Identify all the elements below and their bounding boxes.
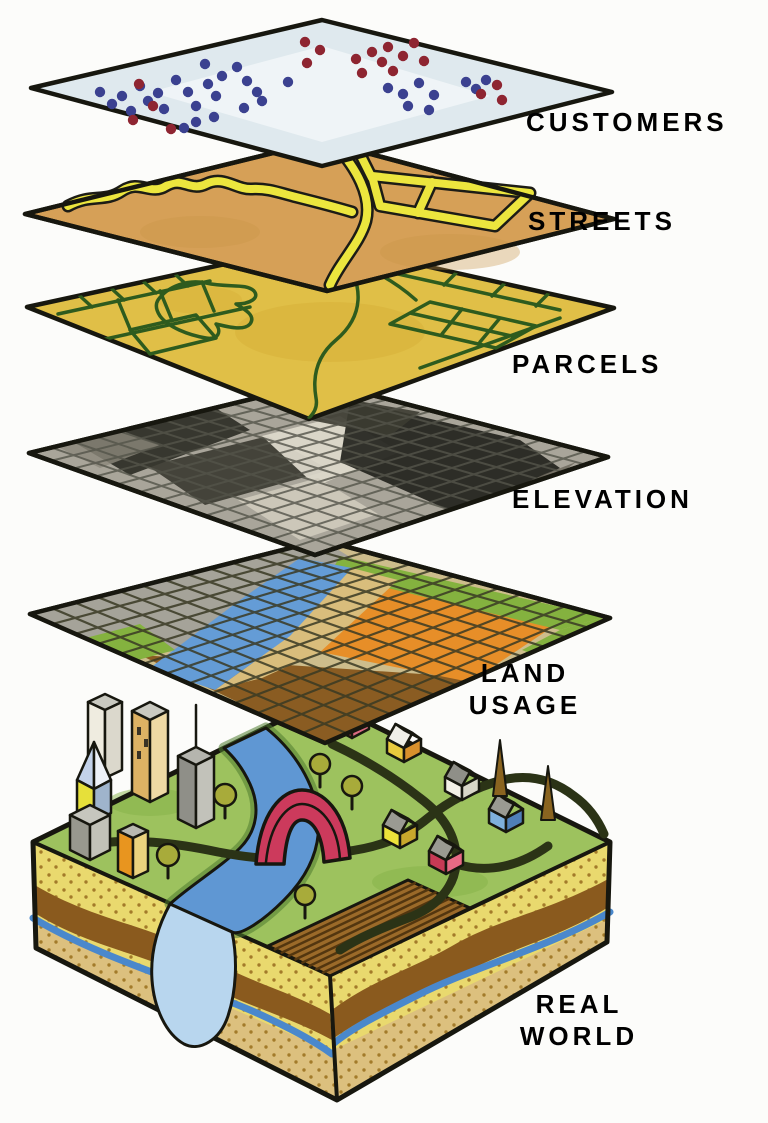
customer-dot (398, 89, 408, 99)
customer-dot (424, 105, 434, 115)
customer-dot (357, 68, 367, 78)
label-customers-text: CUSTOMERS (526, 107, 728, 137)
label-parcels: PARCELS (512, 349, 662, 380)
customer-dot (191, 117, 201, 127)
customer-dot (315, 45, 325, 55)
window (137, 751, 141, 759)
customer-dot (497, 95, 507, 105)
label-real-world: REAL WORLD (490, 988, 668, 1052)
customer-dot (481, 75, 491, 85)
label-streets: STREETS (528, 206, 676, 237)
customer-dot (367, 47, 377, 57)
customer-dot (377, 57, 387, 67)
customer-dot (383, 83, 393, 93)
building-wall (196, 756, 214, 828)
customer-dot (403, 101, 413, 111)
label-customers: CUSTOMERS (526, 107, 728, 138)
building-wall (133, 831, 148, 878)
tree-icon (342, 776, 362, 796)
customer-dot (398, 51, 408, 61)
customer-dot (476, 89, 486, 99)
layers-illustration (0, 0, 768, 1123)
customer-dot (95, 87, 105, 97)
conifer-tree-icon (541, 766, 555, 820)
label-elevation-text: ELEVATION (512, 484, 693, 514)
window (144, 739, 148, 747)
customer-dot (232, 62, 242, 72)
customer-dot (203, 79, 213, 89)
customer-dot (351, 54, 361, 64)
customer-dot (126, 106, 136, 116)
gray-block-building (70, 805, 110, 860)
label-land-usage-line1: LAND (440, 657, 610, 689)
label-land-usage: LAND USAGE (440, 657, 610, 721)
tree-icon (157, 844, 179, 866)
customer-dot (153, 88, 163, 98)
customer-dot (117, 91, 127, 101)
customer-dot (128, 115, 138, 125)
building-wall (178, 756, 196, 828)
conifer-tree-icon (493, 740, 507, 796)
window (137, 727, 141, 735)
label-land-usage-line2: USAGE (440, 689, 610, 721)
label-elevation: ELEVATION (512, 484, 693, 515)
streets-wash (380, 234, 520, 270)
customer-dot (217, 71, 227, 81)
house (387, 724, 421, 762)
building-wall (118, 831, 133, 878)
customers-layer (31, 20, 612, 166)
customer-dot (159, 104, 169, 114)
customer-dot (409, 38, 419, 48)
customer-dot (492, 80, 502, 90)
customer-dot (179, 123, 189, 133)
customer-dot (383, 42, 393, 52)
tree-icon (214, 784, 236, 806)
customer-dot (300, 37, 310, 47)
customer-dot (388, 66, 398, 76)
parcels-wash (235, 302, 425, 362)
customer-dot (211, 91, 221, 101)
customer-dot (242, 76, 252, 86)
tree-icon (295, 885, 315, 905)
orange-block-building (118, 824, 148, 878)
customer-dot (209, 112, 219, 122)
customer-dot (257, 96, 267, 106)
label-parcels-text: PARCELS (512, 349, 662, 379)
customer-dot (283, 77, 293, 87)
building-wall (105, 702, 122, 778)
customer-dot (461, 77, 471, 87)
customer-dot (166, 124, 176, 134)
label-streets-text: STREETS (528, 206, 676, 236)
customer-dot (183, 87, 193, 97)
tan-tower (132, 702, 168, 802)
customer-dot (134, 79, 144, 89)
customer-dot (302, 58, 312, 68)
customer-dot (148, 101, 158, 111)
label-real-world-line2: WORLD (490, 1020, 668, 1052)
customer-dot (171, 75, 181, 85)
customer-dot (191, 101, 201, 111)
customer-dot (107, 99, 117, 109)
customer-dot (252, 87, 262, 97)
house (445, 762, 479, 800)
gis-layers-diagram: CUSTOMERS STREETS PARCELS ELEVATION LAND… (0, 0, 768, 1123)
customer-dot (429, 90, 439, 100)
streets-wash (140, 216, 260, 248)
customer-dot (239, 103, 249, 113)
building-wall (150, 711, 168, 802)
customer-dot (419, 56, 429, 66)
customer-dot (200, 59, 210, 69)
tree-icon (310, 754, 330, 774)
label-real-world-line1: REAL (490, 988, 668, 1020)
customer-dot (414, 78, 424, 88)
antenna-tower (178, 705, 214, 828)
